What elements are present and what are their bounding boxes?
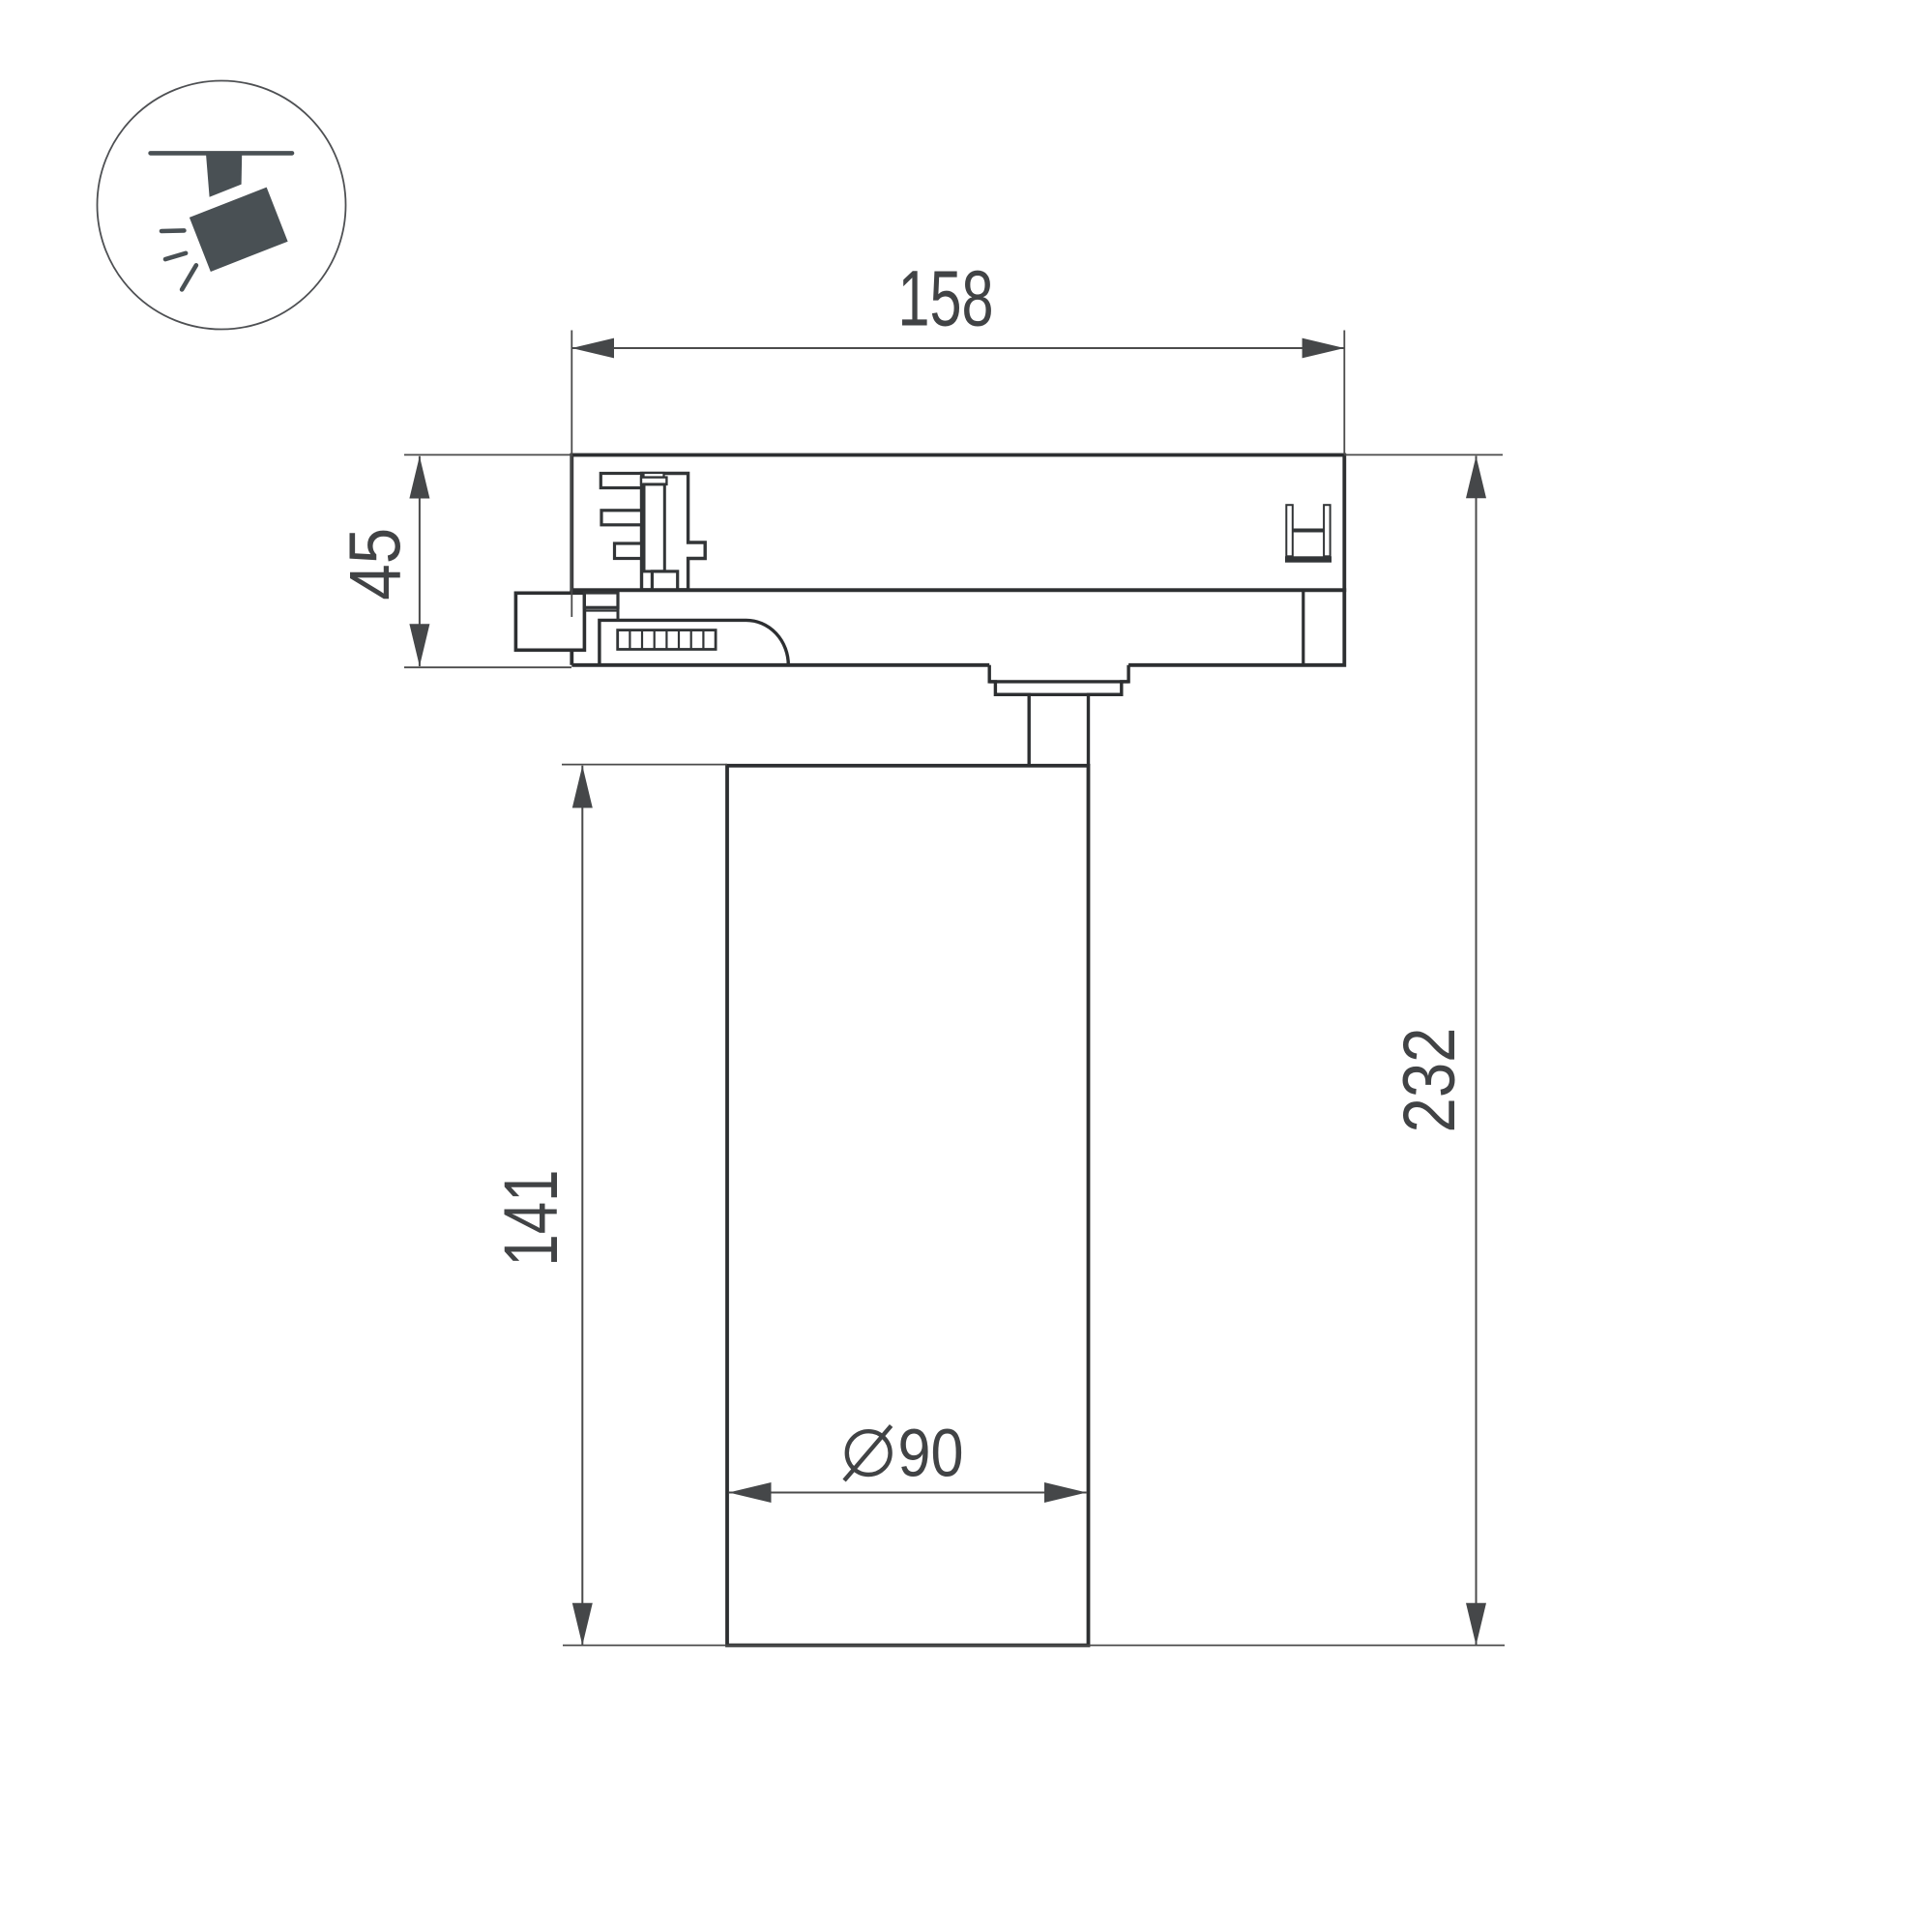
svg-text:232: 232 bbox=[1389, 1028, 1471, 1133]
svg-text:90: 90 bbox=[898, 1415, 964, 1490]
svg-text:141: 141 bbox=[487, 1170, 573, 1267]
svg-text:158: 158 bbox=[898, 255, 994, 343]
svg-text:45: 45 bbox=[335, 528, 416, 600]
